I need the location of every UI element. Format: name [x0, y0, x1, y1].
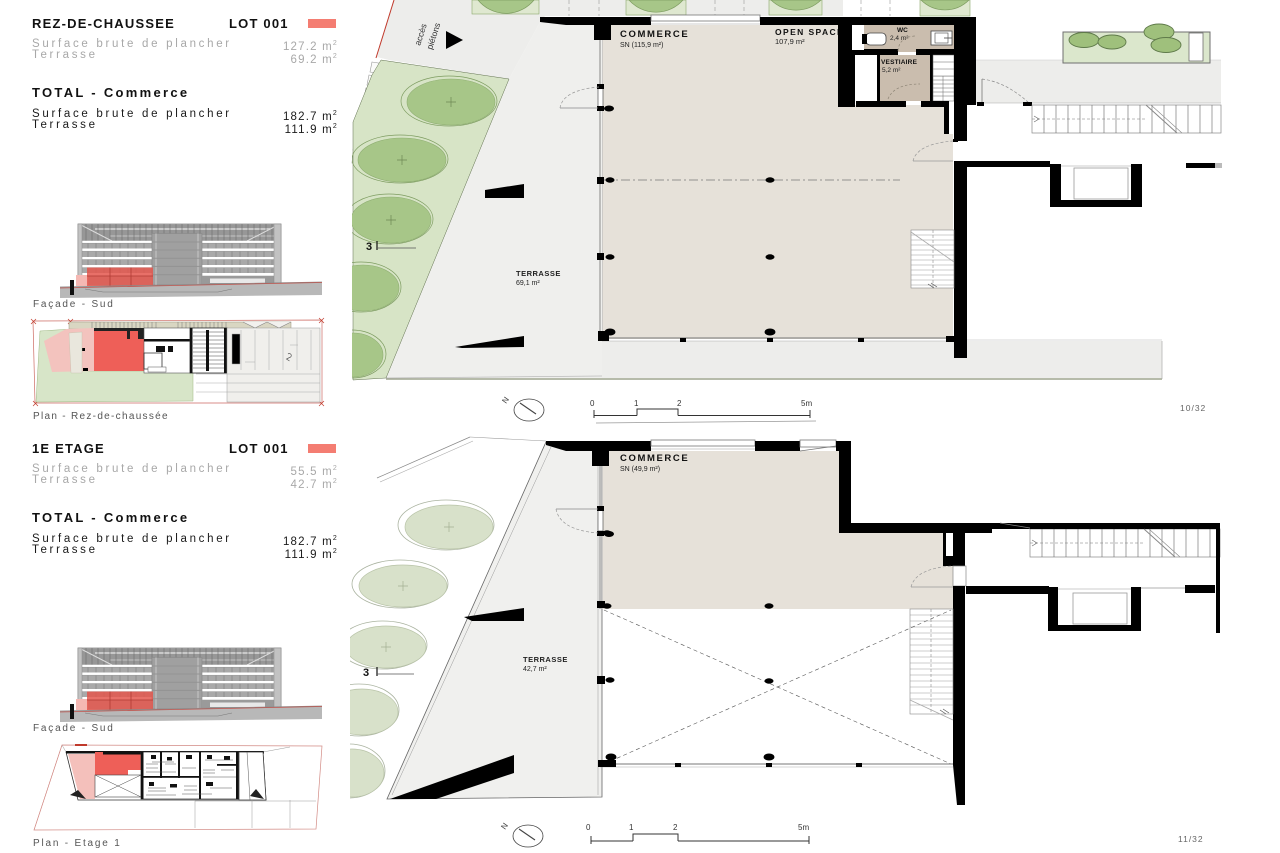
svg-text:3: 3 — [363, 667, 369, 679]
svg-text:2: 2 — [677, 399, 682, 408]
svg-text:TERRASSE: TERRASSE — [516, 269, 561, 278]
svg-text:WC: WC — [897, 27, 908, 34]
svg-text:TERRASSE: TERRASSE — [523, 655, 568, 664]
svg-text:69,1 m²: 69,1 m² — [516, 280, 540, 287]
svg-text:5,2 m²: 5,2 m² — [882, 67, 901, 74]
svg-text:5m: 5m — [801, 399, 812, 408]
svg-text:2,4 m²: 2,4 m² — [890, 35, 909, 42]
svg-text:2: 2 — [673, 823, 678, 832]
svg-text:COMMERCE: COMMERCE — [620, 29, 689, 40]
svg-text:42,7 m²: 42,7 m² — [523, 666, 547, 673]
svg-text:SN (115,9 m²): SN (115,9 m²) — [620, 42, 663, 49]
svg-text:0: 0 — [590, 399, 595, 408]
svg-text:N: N — [500, 395, 511, 405]
svg-text:3: 3 — [366, 241, 372, 253]
svg-text:SN (49,9 m²): SN (49,9 m²) — [620, 466, 660, 473]
svg-text:1: 1 — [629, 823, 634, 832]
svg-text:COMMERCE: COMMERCE — [620, 453, 689, 464]
svg-text:N: N — [499, 821, 510, 831]
svg-text:107,9 m²: 107,9 m² — [775, 37, 805, 46]
svg-text:5m: 5m — [798, 823, 809, 832]
svg-text:1: 1 — [634, 399, 639, 408]
svg-text:OPEN SPACE: OPEN SPACE — [775, 27, 844, 37]
svg-text:0: 0 — [586, 823, 591, 832]
svg-text:VESTIAIRE: VESTIAIRE — [881, 59, 918, 66]
